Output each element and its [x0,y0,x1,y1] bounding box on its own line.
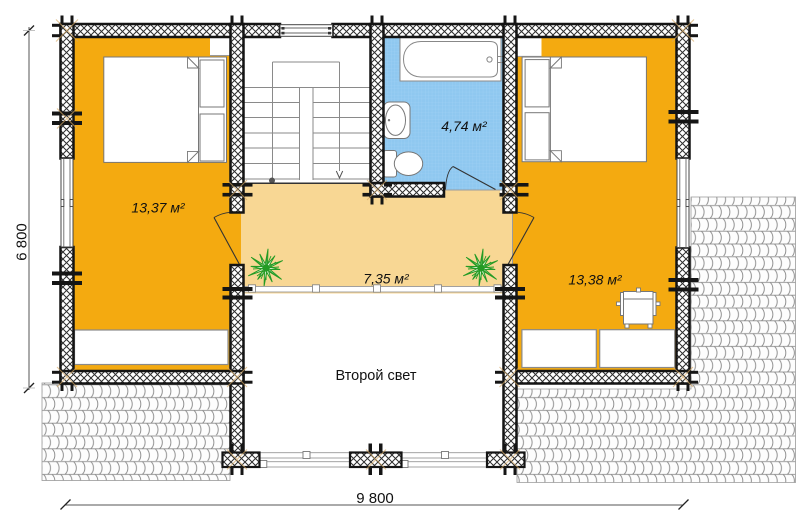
svg-text:13,37 м²: 13,37 м² [131,200,186,216]
svg-text:13,38 м²: 13,38 м² [568,272,623,288]
svg-text:7,35 м²: 7,35 м² [363,271,410,287]
svg-text:Второй свет: Второй свет [335,368,416,384]
svg-text:4,74 м²: 4,74 м² [441,118,488,134]
svg-text:6 800: 6 800 [14,223,31,261]
svg-text:9 800: 9 800 [356,490,394,507]
